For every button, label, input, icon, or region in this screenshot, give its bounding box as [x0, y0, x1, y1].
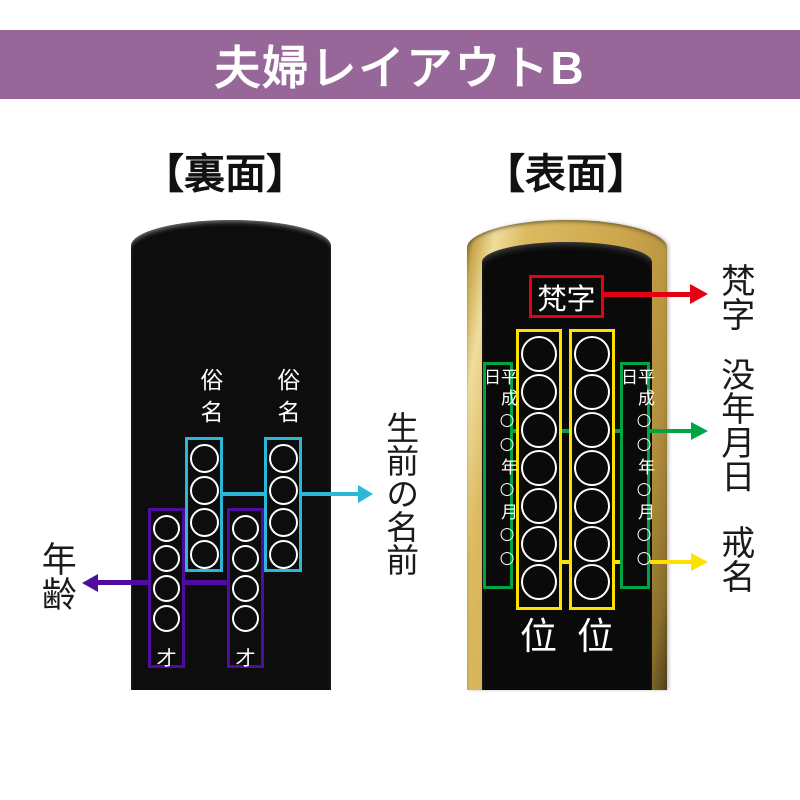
character-placeholder-circle: [521, 336, 557, 372]
kaimyo-annotation-label: 戒名: [716, 525, 753, 593]
back-side-caption: 【裏面】: [95, 140, 355, 200]
character-placeholder-circle: [521, 564, 557, 600]
character-placeholder-circle: [153, 605, 180, 632]
front-side-caption: 【表面】: [436, 140, 696, 200]
bonji-arrow-icon: [690, 284, 708, 304]
character-placeholder-circle: [153, 515, 180, 542]
character-placeholder-circle: [574, 488, 610, 524]
character-placeholder-circle: [190, 444, 219, 473]
character-placeholder-circle: [269, 444, 298, 473]
death-date-arrow-icon: [691, 422, 708, 440]
kaimyo-highlight-box-left: [516, 329, 562, 610]
bonji-highlight-box: 梵字: [529, 275, 604, 318]
rank-char: 位: [577, 606, 614, 660]
character-placeholder-circle: [153, 575, 180, 602]
character-placeholder-circle: [521, 488, 557, 524]
character-placeholder-circle: [521, 526, 557, 562]
character-placeholder-circle: [574, 336, 610, 372]
secular-name-label-wife: 俗名: [269, 368, 303, 432]
character-placeholder-circle: [521, 412, 557, 448]
death-date-highlight-box-right: 平成○○年○月○○日: [620, 362, 650, 589]
death-date-annotation-label: 没年月日: [716, 357, 753, 493]
character-placeholder-circle: [190, 476, 219, 505]
age-suffix-char: 才: [157, 642, 177, 671]
living-name-highlight-box-right: [264, 437, 302, 572]
character-placeholder-circle: [521, 374, 557, 410]
kaimyo-arrow-icon: [691, 553, 708, 571]
kaimyo-highlight-box-right: [569, 329, 615, 610]
header-band: 夫婦レイアウトB: [0, 30, 800, 99]
character-placeholder-circle: [232, 545, 259, 572]
death-date-column: 平成○○年○月○○日: [481, 368, 515, 586]
character-placeholder-circle: [574, 412, 610, 448]
living-name-highlight-box-left: [185, 437, 223, 572]
age-arrow-icon: [82, 574, 98, 592]
living-name-annotation-label: 生前の名前: [382, 411, 418, 576]
age-annotation-label: 年齢: [37, 541, 75, 611]
character-placeholder-circle: [574, 564, 610, 600]
character-placeholder-circle: [269, 476, 298, 505]
rank-char-row: 位 位: [482, 606, 652, 660]
death-date-column: 平成○○年○月○○日: [618, 368, 652, 586]
death-date-highlight-box-left: 平成○○年○月○○日: [483, 362, 513, 589]
couple-layout-diagram: 夫婦レイアウトB 【裏面】 【表面】 俗名 俗名 才 才 年齢 生前の名前 梵字…: [0, 0, 800, 800]
bonji-arrow-line: [602, 292, 692, 297]
character-placeholder-circle: [269, 540, 298, 569]
age-suffix-char: 才: [236, 642, 256, 671]
bonji-text: 梵字: [537, 276, 595, 318]
bonji-annotation-label: 梵字: [716, 263, 753, 331]
living-name-arrow-icon: [358, 485, 373, 503]
character-placeholder-circle: [269, 508, 298, 537]
character-placeholder-circle: [521, 450, 557, 486]
character-placeholder-circle: [153, 545, 180, 572]
age-highlight-box-right: 才: [227, 508, 264, 668]
character-placeholder-circle: [574, 526, 610, 562]
secular-name-label-husband: 俗名: [192, 368, 226, 432]
age-highlight-box-left: 才: [148, 508, 185, 668]
rank-char: 位: [520, 606, 557, 660]
character-placeholder-circle: [232, 515, 259, 542]
character-placeholder-circle: [574, 374, 610, 410]
character-placeholder-circle: [190, 508, 219, 537]
character-placeholder-circle: [232, 605, 259, 632]
character-placeholder-circle: [574, 450, 610, 486]
character-placeholder-circle: [232, 575, 259, 602]
page-title: 夫婦レイアウトB: [214, 32, 585, 98]
character-placeholder-circle: [190, 540, 219, 569]
